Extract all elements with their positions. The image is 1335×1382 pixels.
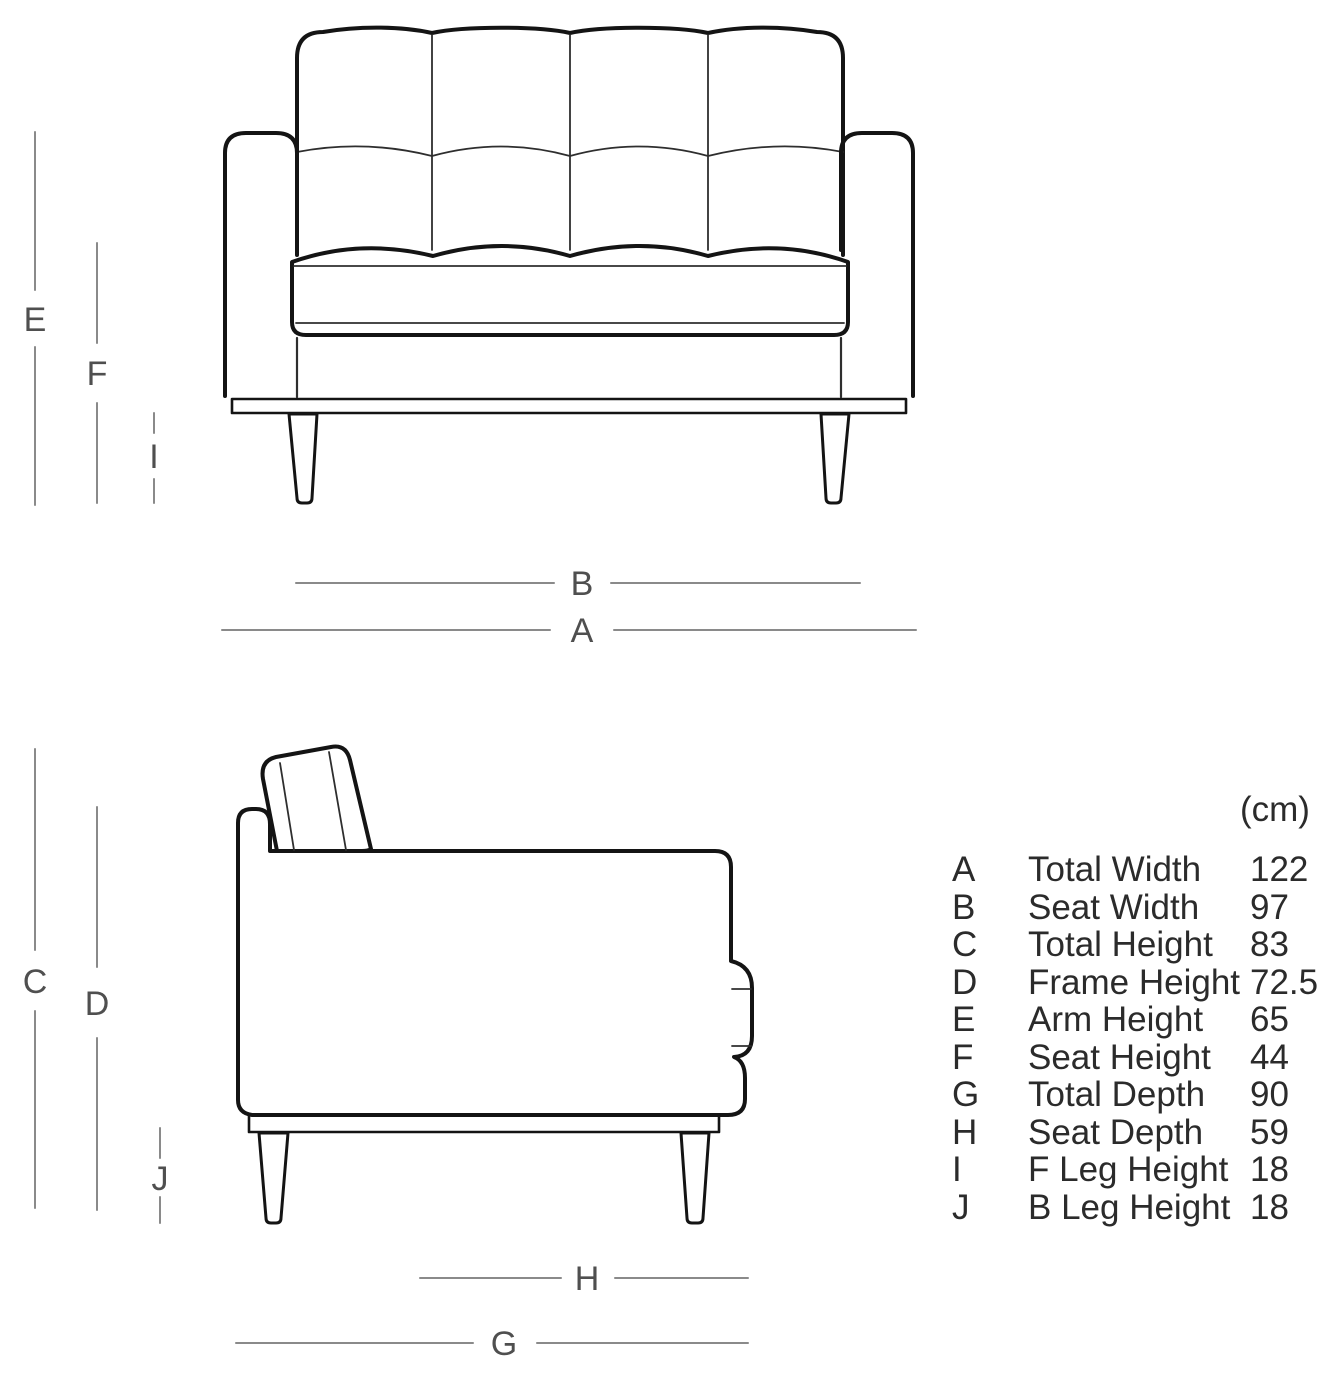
- front-base-rail: [232, 399, 906, 413]
- dimension-value: 65: [1250, 1001, 1327, 1039]
- dimension-letter: E: [952, 1001, 1028, 1039]
- dimension-value: 122: [1250, 851, 1327, 889]
- side-back-cushion: [263, 747, 371, 851]
- dimension-name: Total Height: [1028, 926, 1250, 964]
- front-left-arm: [225, 133, 297, 396]
- dimension-letter: F: [952, 1039, 1028, 1077]
- table-row: J B Leg Height 18: [945, 1189, 1327, 1227]
- front-view-dimension-lines: E F I B A: [24, 132, 916, 650]
- dimensions-table: (cm) A Total Width 122 B Seat Width 97 C…: [945, 791, 1327, 1226]
- dimension-label-e: E: [24, 301, 47, 339]
- dimension-label-d: D: [85, 985, 110, 1023]
- side-back-leg: [259, 1133, 288, 1223]
- table-row: D Frame Height 72.5: [945, 964, 1327, 1002]
- dimension-name: Seat Width: [1028, 889, 1250, 927]
- dimension-line-i: I: [149, 413, 158, 503]
- side-base-rail: [249, 1115, 719, 1132]
- dimension-letter: D: [952, 964, 1028, 1002]
- dimension-label-h: H: [575, 1260, 600, 1298]
- dimension-letter: B: [952, 889, 1028, 927]
- units-label: (cm): [945, 791, 1327, 829]
- table-row: A Total Width 122: [945, 851, 1327, 889]
- dimension-name: Seat Height: [1028, 1039, 1250, 1077]
- dimension-label-f: F: [87, 355, 108, 393]
- dimension-label-b: B: [571, 565, 594, 603]
- dimension-name: B Leg Height: [1028, 1189, 1250, 1227]
- side-view-drawing: [238, 747, 752, 1223]
- dimension-name: Frame Height: [1028, 964, 1250, 1002]
- side-front-leg: [681, 1133, 709, 1223]
- dimension-name: F Leg Height: [1028, 1151, 1250, 1189]
- front-seat-cushion: [292, 246, 848, 335]
- dimension-label-i: I: [149, 438, 158, 476]
- dimension-value: 90: [1250, 1076, 1327, 1114]
- sofa-dimension-diagram-page: E F I B A: [0, 0, 1335, 1382]
- dimension-line-a: A: [222, 612, 916, 650]
- dimension-name: Total Depth: [1028, 1076, 1250, 1114]
- side-view-dimension-lines: C D J H G: [23, 749, 748, 1363]
- dimension-name: Total Width: [1028, 851, 1250, 889]
- table-row: F Seat Height 44: [945, 1039, 1327, 1077]
- dimension-value: 44: [1250, 1039, 1327, 1077]
- dimension-label-c: C: [23, 963, 48, 1001]
- dimension-line-f: F: [87, 243, 108, 503]
- dimension-value: 72.5: [1250, 964, 1327, 1002]
- dimension-line-e: E: [24, 132, 47, 505]
- dimension-value: 83: [1250, 926, 1327, 964]
- dimension-value: 18: [1250, 1151, 1327, 1189]
- dimension-line-h: H: [420, 1260, 748, 1298]
- table-row: I F Leg Height 18: [945, 1151, 1327, 1189]
- front-right-leg: [821, 414, 849, 503]
- dimension-letter: G: [952, 1076, 1028, 1114]
- dimension-value: 59: [1250, 1114, 1327, 1152]
- table-row: C Total Height 83: [945, 926, 1327, 964]
- front-left-leg: [289, 414, 317, 503]
- dimension-value: 18: [1250, 1189, 1327, 1227]
- side-body-outline: [238, 809, 752, 1115]
- dimension-line-b: B: [296, 565, 860, 603]
- dimension-letter: H: [952, 1114, 1028, 1152]
- dimension-line-j: J: [152, 1128, 169, 1223]
- dimension-line-d: D: [85, 807, 110, 1210]
- dimension-name: Arm Height: [1028, 1001, 1250, 1039]
- dimension-letter: I: [952, 1151, 1028, 1189]
- dimension-label-g: G: [491, 1325, 517, 1363]
- table-row: H Seat Depth 59: [945, 1114, 1327, 1152]
- dimension-name: Seat Depth: [1028, 1114, 1250, 1152]
- dimension-value: 97: [1250, 889, 1327, 927]
- front-right-arm: [841, 133, 913, 396]
- front-view-drawing: [225, 28, 913, 503]
- dimension-label-a: A: [571, 612, 594, 650]
- dimension-letter: J: [952, 1189, 1028, 1227]
- dimension-letter: A: [952, 851, 1028, 889]
- table-row: B Seat Width 97: [945, 889, 1327, 927]
- dimension-letter: C: [952, 926, 1028, 964]
- dimension-line-c: C: [23, 749, 48, 1208]
- table-row: E Arm Height 65: [945, 1001, 1327, 1039]
- dimension-label-j: J: [152, 1160, 169, 1198]
- table-row: G Total Depth 90: [945, 1076, 1327, 1114]
- dimension-line-g: G: [236, 1325, 748, 1363]
